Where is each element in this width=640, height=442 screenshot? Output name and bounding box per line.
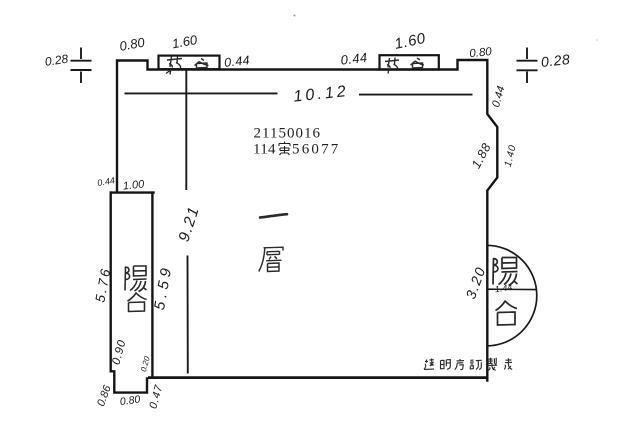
svg-text:21150016: 21150016 (254, 126, 321, 142)
svg-text:114: 114 (253, 142, 276, 158)
svg-text:0.28: 0.28 (540, 51, 571, 70)
svg-text:1.00: 1.00 (122, 178, 145, 192)
svg-text:56077: 56077 (292, 142, 341, 158)
svg-text:0.44: 0.44 (340, 50, 368, 68)
svg-text:0.44: 0.44 (223, 53, 250, 70)
svg-text:0.80: 0.80 (469, 46, 493, 60)
